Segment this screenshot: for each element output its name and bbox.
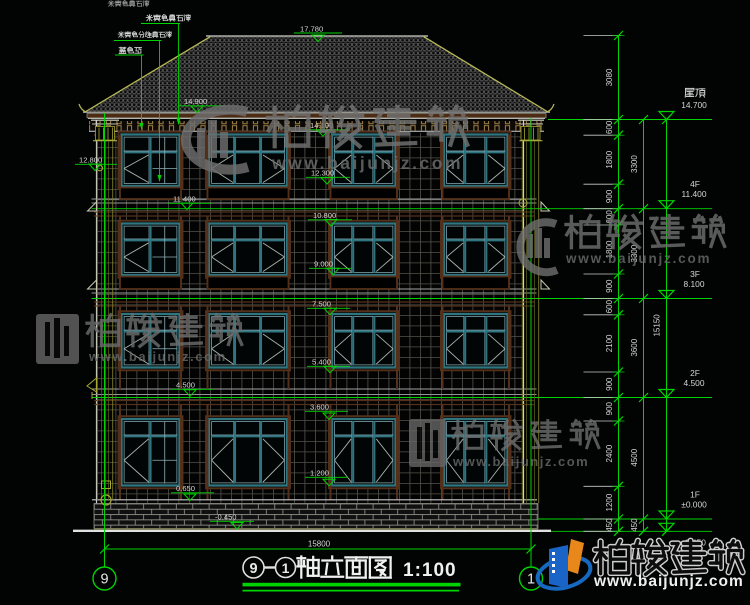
svg-text:900: 900	[605, 401, 614, 415]
svg-text:900: 900	[605, 377, 614, 391]
svg-text:4.500: 4.500	[684, 378, 705, 388]
svg-text:1F: 1F	[690, 490, 700, 500]
svg-text:7.500: 7.500	[312, 300, 331, 309]
svg-text:2400: 2400	[605, 444, 614, 462]
svg-text:1: 1	[527, 572, 535, 588]
svg-text:www.baijunjz.com: www.baijunjz.com	[565, 251, 711, 266]
svg-text:4.500: 4.500	[176, 381, 195, 390]
svg-text:3F: 3F	[690, 269, 700, 279]
svg-text:www.baijunjz.com: www.baijunjz.com	[88, 349, 227, 364]
svg-text:900: 900	[605, 189, 614, 203]
svg-text:450: 450	[605, 518, 614, 532]
svg-text:1.200: 1.200	[310, 469, 329, 478]
svg-text:10.800: 10.800	[313, 211, 336, 220]
svg-text:1800: 1800	[605, 150, 614, 168]
svg-text:12.800: 12.800	[79, 156, 102, 165]
svg-text:-0.450: -0.450	[215, 513, 237, 522]
svg-text:www.baijunjz.com: www.baijunjz.com	[271, 153, 463, 173]
svg-text:3.600: 3.600	[310, 403, 329, 412]
svg-text:9: 9	[249, 561, 257, 577]
svg-text:4500: 4500	[630, 448, 639, 466]
svg-text:450: 450	[630, 518, 639, 532]
svg-text:5.400: 5.400	[312, 358, 331, 367]
svg-text:±0.000: ±0.000	[681, 500, 707, 510]
svg-text:17.780: 17.780	[300, 25, 323, 34]
svg-text:4F: 4F	[690, 179, 700, 189]
svg-text:8.100: 8.100	[684, 279, 705, 289]
svg-text:3600: 3600	[630, 338, 639, 356]
svg-text:3080: 3080	[605, 68, 614, 86]
svg-text:14.700: 14.700	[681, 100, 707, 110]
svg-text:3300: 3300	[630, 155, 639, 173]
svg-text:900: 900	[605, 279, 614, 293]
svg-text:2F: 2F	[690, 368, 700, 378]
svg-text:9: 9	[100, 572, 108, 588]
svg-text:1: 1	[282, 560, 290, 576]
svg-text:11.400: 11.400	[682, 189, 707, 199]
svg-text:0.650: 0.650	[176, 484, 195, 493]
svg-text:9.000: 9.000	[314, 260, 333, 269]
svg-text:600: 600	[605, 299, 614, 313]
svg-text:15800: 15800	[308, 540, 331, 549]
svg-text:www.baijunjz.com: www.baijunjz.com	[452, 454, 589, 469]
svg-text:11.400: 11.400	[173, 195, 196, 204]
svg-text:14.900: 14.900	[184, 97, 207, 106]
svg-text:www.baijunjz.com: www.baijunjz.com	[593, 573, 744, 590]
svg-text:2100: 2100	[605, 334, 614, 352]
svg-text:600: 600	[605, 120, 614, 134]
svg-text:1200: 1200	[605, 493, 614, 511]
svg-text:1:100: 1:100	[403, 560, 457, 581]
svg-text:15150: 15150	[653, 314, 662, 337]
